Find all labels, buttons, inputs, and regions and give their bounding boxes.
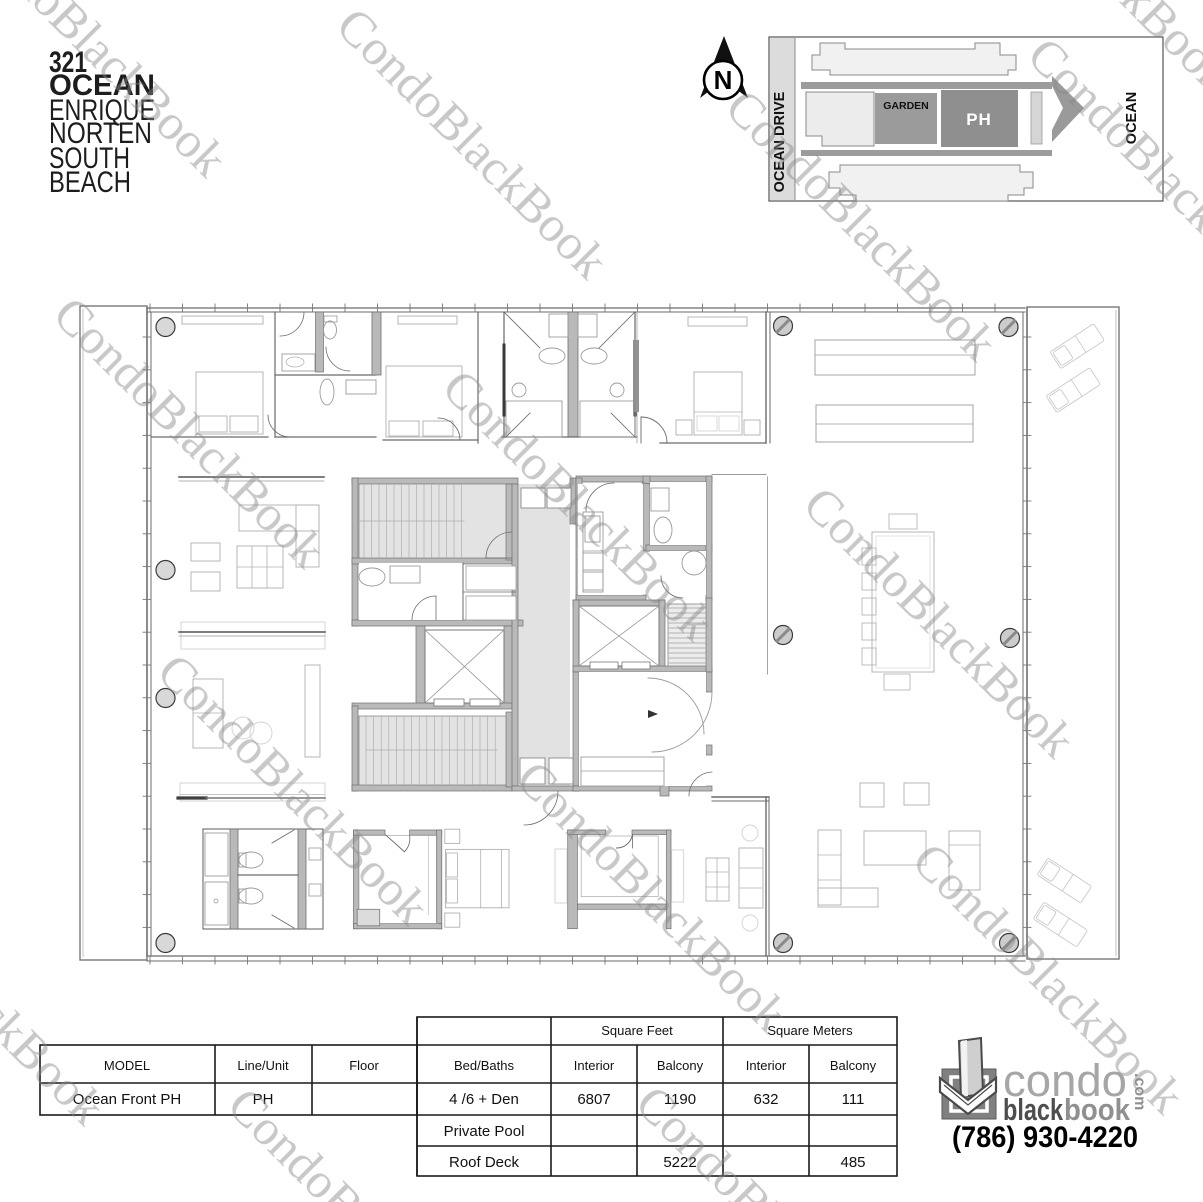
svg-text:PH: PH — [966, 110, 992, 129]
svg-text:Private Pool: Private Pool — [444, 1123, 525, 1140]
svg-text:6807: 6807 — [577, 1091, 610, 1108]
svg-text:Interior: Interior — [746, 1058, 787, 1073]
svg-text:BEACH: BEACH — [49, 166, 131, 199]
svg-text:632: 632 — [753, 1091, 778, 1108]
svg-text:Balcony: Balcony — [657, 1058, 704, 1073]
svg-text:Square Feet: Square Feet — [601, 1023, 673, 1038]
svg-text:Square Meters: Square Meters — [767, 1023, 853, 1038]
svg-text:MODEL: MODEL — [104, 1058, 150, 1073]
svg-text:Balcony: Balcony — [830, 1058, 877, 1073]
svg-text:(786) 930-4220: (786) 930-4220 — [952, 1121, 1138, 1154]
svg-text:Bed/Baths: Bed/Baths — [454, 1058, 514, 1073]
svg-text:Floor: Floor — [349, 1058, 379, 1073]
svg-text:Roof Deck: Roof Deck — [449, 1154, 520, 1171]
svg-text:N: N — [714, 65, 733, 95]
svg-text:485: 485 — [840, 1154, 865, 1171]
svg-text:GARDEN: GARDEN — [883, 100, 929, 112]
svg-text:111: 111 — [842, 1091, 865, 1108]
svg-text:Interior: Interior — [574, 1058, 615, 1073]
svg-text:Line/Unit: Line/Unit — [237, 1058, 289, 1073]
svg-text:4 /6 + Den: 4 /6 + Den — [449, 1091, 519, 1108]
